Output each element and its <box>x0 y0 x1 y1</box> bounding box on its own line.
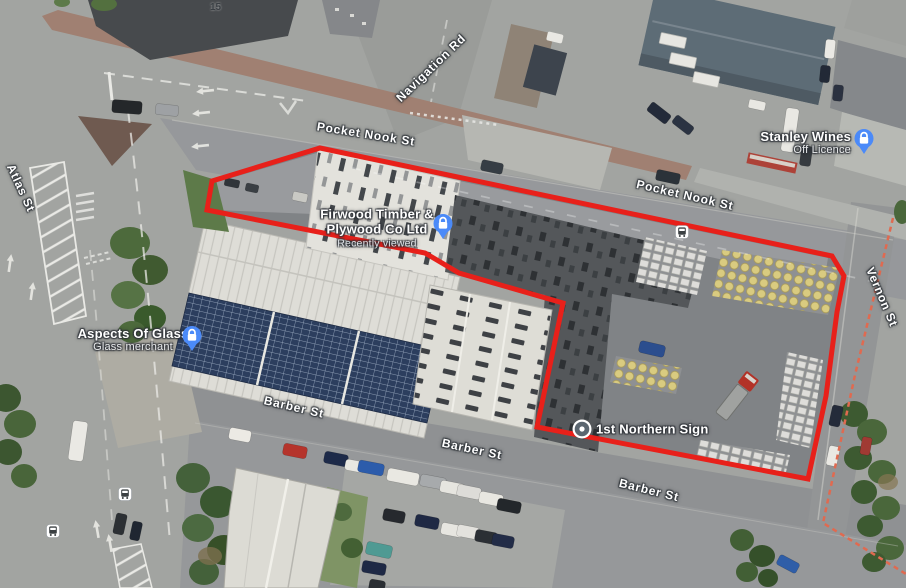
bus-stop-icon[interactable] <box>46 524 60 543</box>
gabled-building-roof <box>413 285 552 430</box>
bus-stop-icon[interactable] <box>675 225 689 244</box>
firwood-timber-marker[interactable] <box>432 213 454 246</box>
place-label-firwood-timber: Firwood Timber & Plywood Co Ltd Recently… <box>320 206 433 249</box>
stanley-wines-marker[interactable] <box>853 128 875 161</box>
satellite-map[interactable] <box>0 0 906 588</box>
aspects-of-glass-marker[interactable] <box>181 325 203 358</box>
place-label-first-northern-sign: 1st Northern Sign <box>596 421 708 436</box>
map-viewport[interactable]: 15 Navigation Rd Pocket Nook St Pocket N… <box>0 0 906 588</box>
place-label-stanley-wines: Stanley Wines Off Licence <box>760 129 851 157</box>
recently-viewed-status: Recently viewed <box>320 237 433 249</box>
house-number-label: 15 <box>210 2 221 13</box>
bus-stop-icon[interactable] <box>118 487 132 506</box>
dot-marker-icon <box>570 417 594 441</box>
first-northern-sign-marker[interactable] <box>570 417 594 446</box>
place-label-aspects-of-glass: Aspects Of Glass Glass merchant <box>78 326 189 354</box>
